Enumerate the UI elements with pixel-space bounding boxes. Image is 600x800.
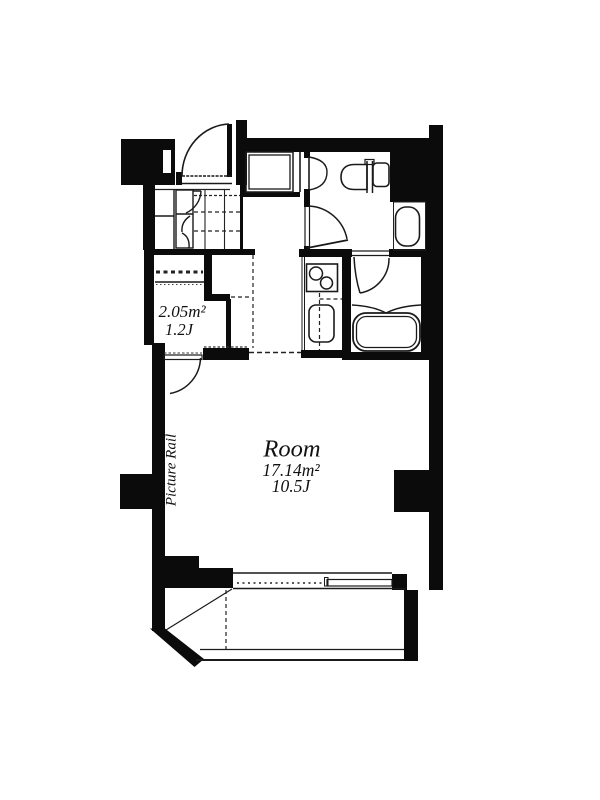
svg-text:Room: Room — [262, 436, 320, 463]
svg-text:Picture Rail: Picture Rail — [164, 434, 180, 507]
svg-text:1.2J: 1.2J — [165, 320, 194, 339]
svg-text:10.5J: 10.5J — [272, 476, 312, 496]
svg-text:2.05m²: 2.05m² — [158, 302, 206, 321]
